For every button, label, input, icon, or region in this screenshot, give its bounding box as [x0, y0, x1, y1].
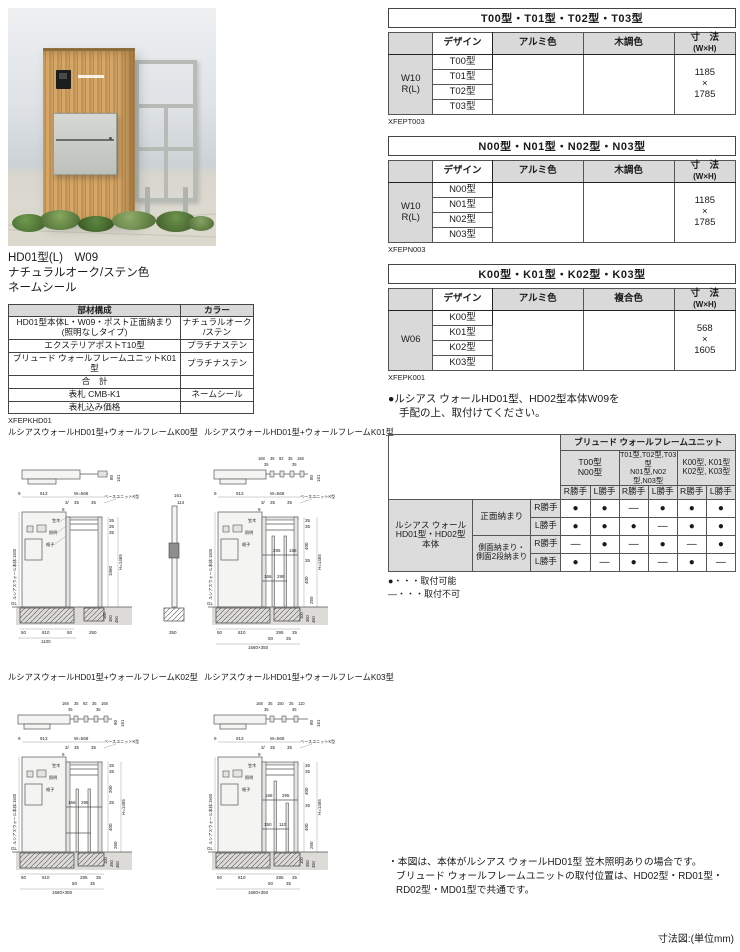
gl-label: GL	[11, 846, 18, 851]
drawing-cell-k01: ルシアスウォールHD01型+ウォールフレームK01型 168 35 92 35 …	[204, 426, 400, 657]
table-row: ブリュード ウォールフレームユニットK01型 プラチナステン	[9, 353, 254, 376]
compat-cell: ―	[619, 499, 648, 517]
base-unit-label: ベースユニットK型	[300, 493, 335, 499]
dim: 35	[305, 558, 311, 563]
dim: 250	[89, 630, 97, 635]
dim: 913	[40, 736, 48, 741]
unit-note: 寸法図:(単位mm)	[658, 930, 734, 945]
dim: 35	[305, 769, 311, 774]
group-k00: K00型, K01型 K02型, K03型	[677, 451, 735, 486]
caption-nameseal: ネームシール	[8, 281, 382, 296]
compat-cell: ●	[706, 517, 735, 535]
dim: 35	[109, 800, 115, 805]
base-unit-label: ベースユニットK型	[300, 738, 335, 744]
front-dims-left: ルシアスウォール本体:1500	[11, 757, 19, 852]
dim: 260	[309, 841, 314, 849]
col-header-design: デザイン	[433, 161, 492, 183]
dim: 35	[305, 524, 311, 529]
table-row: W10 R(L) N00型 1185 × 1785	[389, 183, 736, 198]
dim: 9	[62, 507, 65, 512]
label-kasagi: 笠木	[52, 762, 60, 768]
dim: 35	[292, 707, 297, 712]
dim: 50	[72, 881, 78, 886]
wood-color-swatch	[583, 55, 674, 115]
spec-title: K00型・K01型・K02型・K03型	[388, 264, 736, 284]
compat-cell: ●	[706, 535, 735, 553]
dim: 9	[214, 736, 217, 741]
gl-label: GL	[207, 846, 214, 851]
size-cell: 1185 × 1785	[674, 183, 735, 243]
dim: 913	[40, 491, 48, 496]
compat-cell: ●	[648, 535, 677, 553]
wall-height-label: ルシアスウォール本体:1500	[11, 793, 17, 845]
label-koshi: 格子	[46, 541, 54, 547]
front-dims-top: 9 913 W=568 3/ 35 35 9 ベースユニットK型	[214, 736, 335, 757]
dim: 100	[103, 856, 108, 864]
dim: H=1465	[317, 554, 322, 570]
label-kasagi: 笠木	[248, 517, 256, 523]
label-kasagi: 笠木	[52, 517, 60, 523]
dim: 450	[311, 860, 316, 868]
dim: 3/	[65, 745, 70, 750]
photo-caption: HD01型(L) W09 ナチュラルオーク/ステン色 ネームシール	[8, 251, 382, 297]
dim: 35	[270, 745, 276, 750]
col-header-size: 寸 法 (W×H)	[674, 33, 735, 55]
hand-header: R勝手	[677, 485, 706, 499]
wall-height-label: ルシアスウォール本体:1500	[207, 548, 213, 600]
part-color: プラチナステン	[181, 340, 254, 353]
stub-size: W06	[389, 311, 433, 371]
label-shomei: 照明	[245, 775, 253, 780]
dim: 350	[109, 859, 114, 867]
dim: 35	[289, 701, 294, 706]
compatibility-table: ブリュード ウォールフレームユニット T00型 N00型 T01型,T02型,T…	[388, 434, 736, 572]
dim: 400	[304, 823, 309, 831]
dim: 80	[309, 474, 314, 480]
body-header: ルシアス ウォール HD01型・HD02型 本体	[389, 499, 473, 571]
part-color	[181, 375, 254, 388]
dim: 3/	[261, 500, 266, 505]
front-dims-right: 35 35 400 35 400 260 H=1465	[304, 762, 322, 852]
dim: 168	[265, 793, 273, 798]
front-dims-right: 35 35 35 1060 H=1465	[108, 517, 123, 607]
caption-model: HD01型(L) W09	[8, 251, 382, 266]
dim: 35	[305, 803, 311, 808]
plan-view: 168 35 92 35 168 35 35 80 161	[18, 701, 125, 729]
dim: 35	[305, 518, 311, 523]
gl-label: GL	[207, 601, 214, 606]
dim: H=1465	[121, 799, 126, 815]
part-color	[181, 401, 254, 414]
col-header-wood: 木調色	[583, 33, 674, 55]
base-unit-label: ベースユニットK型	[104, 493, 139, 499]
dim: 168	[256, 701, 264, 706]
part-name: 合 計	[9, 375, 181, 388]
dim: 168	[101, 701, 109, 706]
alumi-color-swatch	[492, 311, 583, 371]
dim: 35	[92, 701, 97, 706]
label-koshi: 格子	[46, 786, 54, 792]
dim: 9	[258, 752, 261, 757]
spec-block-k: K00型・K01型・K02型・K03型 デザイン アルミ色 複合色 寸 法 (W…	[388, 264, 736, 382]
col-header-wood: 木調色	[583, 161, 674, 183]
drawing-cell-k03: ルシアスウォールHD01型+ウォールフレームK03型 168 35 150 35…	[204, 671, 400, 902]
dim: 35	[74, 500, 80, 505]
spec-block-n: N00型・N01型・N02型・N03型 デザイン アルミ色 木調色 寸 法 (W…	[388, 136, 736, 254]
table-row: HD01型本体L・W09・ポスト正面納まり (照明なしタイプ) ナチュラルオーク…	[9, 317, 254, 340]
dim: 100	[102, 611, 107, 619]
base-unit-label: ベースユニットK型	[104, 738, 139, 744]
part-color: ネームシール	[181, 388, 254, 401]
dim: 35	[292, 630, 298, 635]
label-koshi: 格子	[242, 541, 250, 547]
caption-color: ナチュラルオーク/ステン色	[8, 266, 382, 281]
side-mount-label: 側面納まり・ 側面2段納まり	[473, 535, 531, 571]
label-koshi: 格子	[242, 786, 250, 792]
compat-cell: ●	[619, 553, 648, 571]
col-header-alumi: アルミ色	[492, 289, 583, 311]
part-name: ブリュード ウォールフレームユニットK01型	[9, 353, 181, 376]
compat-cell: ―	[561, 535, 590, 553]
col-header-size: 寸 法 (W×H)	[674, 289, 735, 311]
dim: H=1465	[118, 554, 123, 570]
dim: 50	[268, 636, 274, 641]
wall-height-label: ルシアスウォール本体:1500	[207, 793, 213, 845]
dim: 35	[264, 707, 269, 712]
gl-label: GL	[11, 601, 18, 606]
dim: 35	[91, 500, 97, 505]
spec-block-t: T00型・T01型・T02型・T03型 デザイン アルミ色 木調色 寸 法 (W…	[388, 8, 736, 126]
dim: 35	[286, 881, 292, 886]
dim: 295	[276, 875, 284, 880]
compat-cell: ●	[561, 499, 590, 517]
drawing-title: ルシアスウォールHD01型+ウォールフレームK01型	[204, 426, 400, 438]
col-header-size: 寸 法 (W×H)	[674, 161, 735, 183]
dim: 400	[304, 787, 309, 795]
dim: 1680×350	[248, 890, 269, 895]
dim: 35	[288, 456, 293, 461]
product-code: XFEPKHD01	[8, 416, 382, 425]
front-dims-bottom: 50 810 50 1100 250	[18, 629, 97, 644]
dim: 35	[287, 745, 293, 750]
dim: 295	[81, 800, 89, 805]
dim: 168	[62, 701, 70, 706]
postbox	[53, 113, 117, 175]
dim: 166	[68, 800, 76, 805]
compat-cell: ●	[706, 499, 735, 517]
parts-header-color: カラー	[181, 304, 254, 317]
dim: H=1465	[317, 799, 322, 815]
dim: 110	[279, 822, 287, 827]
col-header-design: デザイン	[433, 289, 492, 311]
spec-table-t: デザイン アルミ色 木調色 寸 法 (W×H) W10 R(L) T00型	[388, 32, 736, 115]
footnotes: ・本図は、本体がルシアス ウォールHD01型 笠木照明ありの場合です。 ブリュー…	[388, 856, 740, 898]
nameplate-sign	[78, 75, 104, 78]
dim: 35	[74, 745, 80, 750]
stub-size: W10 R(L)	[389, 55, 433, 115]
technical-drawing-k01: 168 35 92 35 168 35 35 80 161	[204, 440, 396, 652]
dim: W=568	[270, 736, 285, 741]
stub-size: W10 R(L)	[389, 183, 433, 243]
parts-header-composition: 部材構成	[9, 304, 181, 317]
product-code: XFEPN003	[388, 245, 736, 254]
dim: 168	[297, 456, 305, 461]
size-cell: 1185 × 1785	[674, 55, 735, 115]
front-dims-top: 9 913 W=568 3/ 35 35 9 ベースユニットK型	[18, 491, 139, 512]
dim: 450	[114, 615, 119, 623]
table-row: 表札 CMB-K1 ネームシール	[9, 388, 254, 401]
wood-panel	[43, 48, 135, 222]
dim: 400	[108, 823, 113, 831]
dim: 3/	[261, 745, 266, 750]
dim: 1680×350	[248, 645, 269, 650]
hand-label: R勝手	[531, 499, 561, 517]
technical-drawing-k02: 168 35 92 35 168 35 35 80 161	[8, 685, 200, 897]
dim: 35	[109, 763, 115, 768]
label-shomei: 照明	[245, 530, 253, 535]
dim: 50	[21, 630, 27, 635]
dim: 161	[116, 474, 121, 482]
compat-cell: ●	[619, 517, 648, 535]
dim: 161	[120, 719, 125, 727]
compat-cell: ―	[648, 553, 677, 571]
hand-label: L勝手	[531, 553, 561, 571]
dim: 9	[214, 491, 217, 496]
compat-cell: ●	[677, 517, 706, 535]
dim: 450	[115, 860, 120, 868]
composite-color-swatch	[583, 311, 674, 371]
dim: 810	[42, 875, 50, 880]
dim: 35	[96, 707, 101, 712]
right-column: T00型・T01型・T02型・T03型 デザイン アルミ色 木調色 寸 法 (W…	[388, 8, 736, 600]
design-cell: K01型	[433, 326, 492, 341]
dim: 810	[238, 875, 246, 880]
compat-cell: ●	[561, 553, 590, 571]
col-header-composite: 複合色	[583, 289, 674, 311]
catalog-page: HD01型(L) W09 ナチュラルオーク/ステン色 ネームシール 部材構成 カ…	[0, 0, 740, 952]
dim: 35	[68, 707, 73, 712]
design-cell: T03型	[433, 100, 492, 115]
design-cell: N02型	[433, 213, 492, 228]
design-cell: T01型	[433, 70, 492, 85]
dim: 260	[113, 841, 118, 849]
dim: 92	[279, 456, 284, 461]
product-code: XFEPK001	[388, 373, 736, 382]
dim: 50	[217, 630, 223, 635]
dim: 1680×350	[52, 890, 73, 895]
front-mount-label: 正面納まり	[473, 499, 531, 535]
postbox-slot	[56, 139, 114, 141]
alumi-color-swatch	[492, 55, 583, 115]
dim: 92	[83, 701, 88, 706]
compat-cell: ●	[677, 553, 706, 571]
compat-cell: ―	[590, 553, 619, 571]
dim: 295	[277, 574, 285, 579]
compat-cell: ―	[619, 535, 648, 553]
dim: 1100	[41, 639, 51, 644]
hand-header: R勝手	[619, 485, 648, 499]
label-kasagi: 笠木	[248, 762, 256, 768]
group-t00: T00型 N00型	[561, 451, 619, 486]
wall-height-label: ルシアスウォール本体:1500	[11, 548, 17, 600]
plants	[12, 198, 212, 231]
label-shomei: 照明	[49, 775, 57, 780]
part-name: 表札込み価格	[9, 401, 181, 414]
front-dims-right: 35 35 200 35 400 260 H=1465	[108, 762, 126, 852]
dim: 110	[298, 701, 305, 706]
dim: 35	[91, 745, 97, 750]
front-dims-left: ルシアスウォール本体:1500	[207, 512, 215, 607]
dim: 168	[258, 456, 266, 461]
design-cell: T02型	[433, 85, 492, 100]
compat-cell: ―	[677, 535, 706, 553]
dim: 295	[80, 875, 88, 880]
dim: 50	[217, 875, 223, 880]
dim: 295	[276, 630, 284, 635]
dim: 9	[258, 507, 261, 512]
dim: 295	[282, 793, 290, 798]
compat-cell: ●	[590, 499, 619, 517]
plan-view: 80 161	[22, 470, 121, 484]
dim: 161	[316, 474, 321, 482]
front-view: 笠木 照明 格子 168 295 150 110	[218, 757, 298, 852]
spec-table-k: デザイン アルミ色 複合色 寸 法 (W×H) W06 K00型	[388, 288, 736, 371]
technical-drawing-k00: 80 161 9 913 W=568 3/ 35 35 9 ベースユニットK型	[8, 440, 200, 652]
dim: W=568	[270, 491, 285, 496]
order-note: ●ルシアス ウォールHD01型、HD02型本体W09を 手配の上、取付けてくださ…	[388, 392, 736, 420]
product-photo	[8, 8, 216, 246]
dim: 350	[305, 614, 310, 622]
spec-title: T00型・T01型・T02型・T03型	[388, 8, 736, 28]
dim: 168	[289, 548, 297, 553]
dim: 9	[62, 752, 65, 757]
dim: 50	[21, 875, 27, 880]
product-code: XFEPT003	[388, 117, 736, 126]
compat-cell: ●	[561, 517, 590, 535]
front-dims-left: ルシアスウォール本体:1500	[11, 512, 19, 607]
front-dims-top: 9 913 W=568 3/ 35 35 9 ベースユニットK型	[214, 491, 335, 512]
dim: 35	[109, 518, 115, 523]
wood-color-swatch	[583, 183, 674, 243]
parts-table: 部材構成 カラー HD01型本体L・W09・ポスト正面納まり (照明なしタイプ)…	[8, 304, 254, 415]
hand-header: L勝手	[706, 485, 735, 499]
dim: 913	[236, 491, 244, 496]
dim: 400	[304, 542, 309, 550]
dim: 350	[305, 859, 310, 867]
dim: 35	[109, 769, 115, 774]
hand-header: R勝手	[561, 485, 590, 499]
dim: 35	[286, 636, 292, 641]
front-view: 笠木 照明 格子 166 295	[22, 757, 102, 852]
technical-drawing-k03: 168 35 150 35 110 35 35 80 161	[204, 685, 396, 897]
plan-view: 168 35 92 35 168 35 35 80 161	[214, 456, 321, 484]
dim: 35	[292, 462, 297, 467]
dim: W=568	[74, 736, 89, 741]
dim: 3/	[65, 500, 70, 505]
table-row: エクステリアポストT10型 プラチナステン	[9, 340, 254, 353]
dim: 80	[309, 719, 314, 725]
dim: 260	[309, 596, 314, 604]
compat-cell: ―	[648, 517, 677, 535]
dim: 35	[96, 875, 102, 880]
compat-cell: ●	[590, 535, 619, 553]
dim: 50	[67, 630, 73, 635]
part-color: プラチナステン	[181, 353, 254, 376]
front-dims-bottom: 50 810 295 35 50 35 1680×350	[216, 629, 300, 650]
dim: 35	[268, 701, 273, 706]
side-view: 161 114 350	[164, 493, 185, 635]
front-view: 笠木 照明 格子	[22, 512, 102, 607]
dim: 35	[305, 763, 311, 768]
design-cell: K00型	[433, 311, 492, 326]
front-dims-left: ルシアスウォール本体:1500	[207, 757, 215, 852]
dim: 9	[18, 736, 21, 741]
frame-unit-header: ブリュード ウォールフレームユニット	[561, 435, 736, 451]
dim: 35	[264, 462, 269, 467]
plan-view: 168 35 150 35 110 35 35 80 161	[214, 701, 321, 729]
spec-table-n: デザイン アルミ色 木調色 寸 法 (W×H) W10 R(L) N00型	[388, 160, 736, 243]
design-cell: N00型	[433, 183, 492, 198]
drawing-title: ルシアスウォールHD01型+ウォールフレームK00型	[8, 426, 204, 438]
drawing-cell-k02: ルシアスウォールHD01型+ウォールフレームK02型 168 35 92 35 …	[8, 671, 204, 902]
dim: 35	[270, 456, 275, 461]
table-row: W10 R(L) T00型 1185 × 1785	[389, 55, 736, 70]
design-cell: T00型	[433, 55, 492, 70]
dim: 80	[109, 474, 114, 480]
design-cell: K02型	[433, 341, 492, 356]
group-t01: T01型,T02型,T03型 N01型,N02型,N03型	[619, 451, 677, 486]
dim: 1060	[108, 565, 113, 576]
dim: 810	[238, 630, 246, 635]
dim: 50	[268, 881, 274, 886]
table-row: 合 計	[9, 375, 254, 388]
design-cell: N03型	[433, 228, 492, 243]
front-view: 笠木 照明 格子 295 168 166 295	[218, 512, 298, 607]
dimension-drawings: ルシアスウォールHD01型+ウォールフレームK00型 80 161 9 913	[8, 426, 400, 902]
part-name: 表札 CMB-K1	[9, 388, 181, 401]
dim: 114	[177, 500, 185, 505]
size-cell: 568 × 1605	[674, 311, 735, 371]
dim: 161	[316, 719, 321, 727]
part-color: ナチュラルオーク /ステン	[181, 317, 254, 340]
dim: 450	[311, 615, 316, 623]
design-cell: K03型	[433, 356, 492, 371]
table-row: 表札込み価格	[9, 401, 254, 414]
dim: 295	[273, 548, 281, 553]
spec-title: N00型・N01型・N02型・N03型	[388, 136, 736, 156]
compat-cell: ●	[677, 499, 706, 517]
dim: 35	[292, 875, 298, 880]
front-dims-bottom: 50 810 295 35 50 35 1680×350	[216, 874, 300, 895]
hand-label: R勝手	[531, 535, 561, 553]
hand-header: L勝手	[590, 485, 619, 499]
hand-label: L勝手	[531, 517, 561, 535]
frame-lattice	[135, 60, 197, 201]
drawing-cell-k00: ルシアスウォールHD01型+ウォールフレームK00型 80 161 9 913	[8, 426, 204, 657]
dim: 9	[18, 491, 21, 496]
compat-cell: ―	[706, 553, 735, 571]
col-header-alumi: アルミ色	[492, 33, 583, 55]
dim: 35	[109, 530, 115, 535]
dim: 35	[90, 881, 96, 886]
dim: 80	[113, 719, 118, 725]
dim: 100	[299, 856, 304, 864]
dim: 350	[108, 614, 113, 622]
label-shomei: 照明	[49, 530, 57, 535]
front-dims-right: 35 35 400 35 400 260 H=1465	[304, 517, 322, 607]
compat-legend: ●・・・取付可能 ―・・・取付不可	[388, 575, 736, 600]
col-header-alumi: アルミ色	[492, 161, 583, 183]
